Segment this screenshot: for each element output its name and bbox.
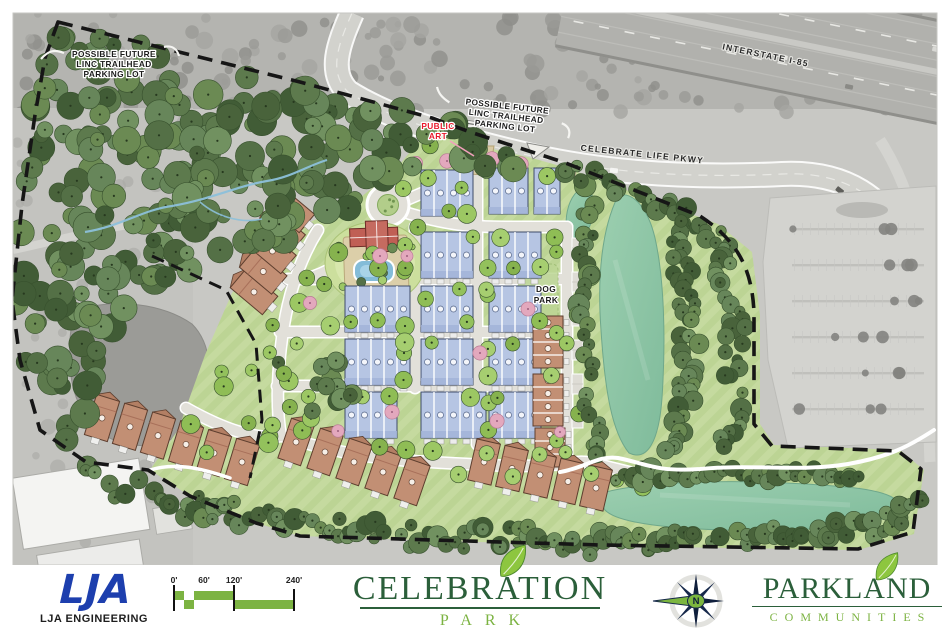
lja-engineering-logo: LJA LJA ENGINEERING — [24, 567, 164, 625]
compass-rose-icon: N — [650, 571, 742, 631]
trailhead-label-line1: POSSIBLE FUTURE — [72, 49, 156, 59]
plan-graphics — [2, 0, 950, 591]
north-compass: N — [650, 571, 742, 634]
lja-logo-mark: LJA — [34, 567, 154, 611]
label-dog-park: DOG PARK — [534, 284, 559, 305]
compass-north-letter: N — [693, 596, 700, 607]
leaf-icon — [498, 543, 528, 579]
scale-bar-graphic: 0' 60' 120' 240' — [166, 571, 306, 617]
scale-tick-120: 120' — [226, 575, 242, 585]
celebration-park-logo: CELEBRATION PARK — [352, 543, 608, 630]
lja-mark-text: LJA — [59, 567, 132, 611]
existing-parking-lot — [763, 186, 936, 448]
dog-park-label-line1: DOG — [536, 284, 556, 294]
trailhead-label-line2: LINC TRAILHEAD — [76, 59, 151, 69]
celebration-title: CELEBRATION — [352, 573, 608, 605]
logo-rule — [360, 607, 600, 609]
public-art-label-line1: PUBLIC — [421, 121, 454, 131]
scale-tick-240: 240' — [286, 575, 302, 585]
public-art-label-line2: ART — [429, 131, 447, 141]
parkland-subtitle: COMMUNITIES — [744, 610, 950, 625]
parkland-communities-logo: PARKLAND COMMUNITIES — [744, 551, 950, 625]
parkland-title: PARKLAND — [744, 575, 950, 604]
scale-tick-60: 60' — [198, 575, 209, 585]
trailhead-label-line3: PARKING LOT — [84, 69, 145, 79]
celebration-subtitle: PARK — [352, 612, 608, 630]
logo-rule — [752, 606, 942, 608]
scale-tick-0: 0' — [171, 575, 178, 585]
scale-bar: 0' 60' 120' 240' — [166, 571, 306, 622]
site-plan-sheet: POSSIBLE FUTURE LINC TRAILHEAD PARKING L… — [0, 0, 950, 634]
dog-park-label-line2: PARK — [534, 295, 559, 305]
site-plan-map: POSSIBLE FUTURE LINC TRAILHEAD PARKING L… — [0, 0, 950, 634]
footer-band: LJA LJA ENGINEERING 0' 60' 120' 240' — [0, 565, 950, 634]
leaf-icon — [874, 551, 900, 582]
lja-engineering-name: LJA ENGINEERING — [24, 613, 164, 625]
